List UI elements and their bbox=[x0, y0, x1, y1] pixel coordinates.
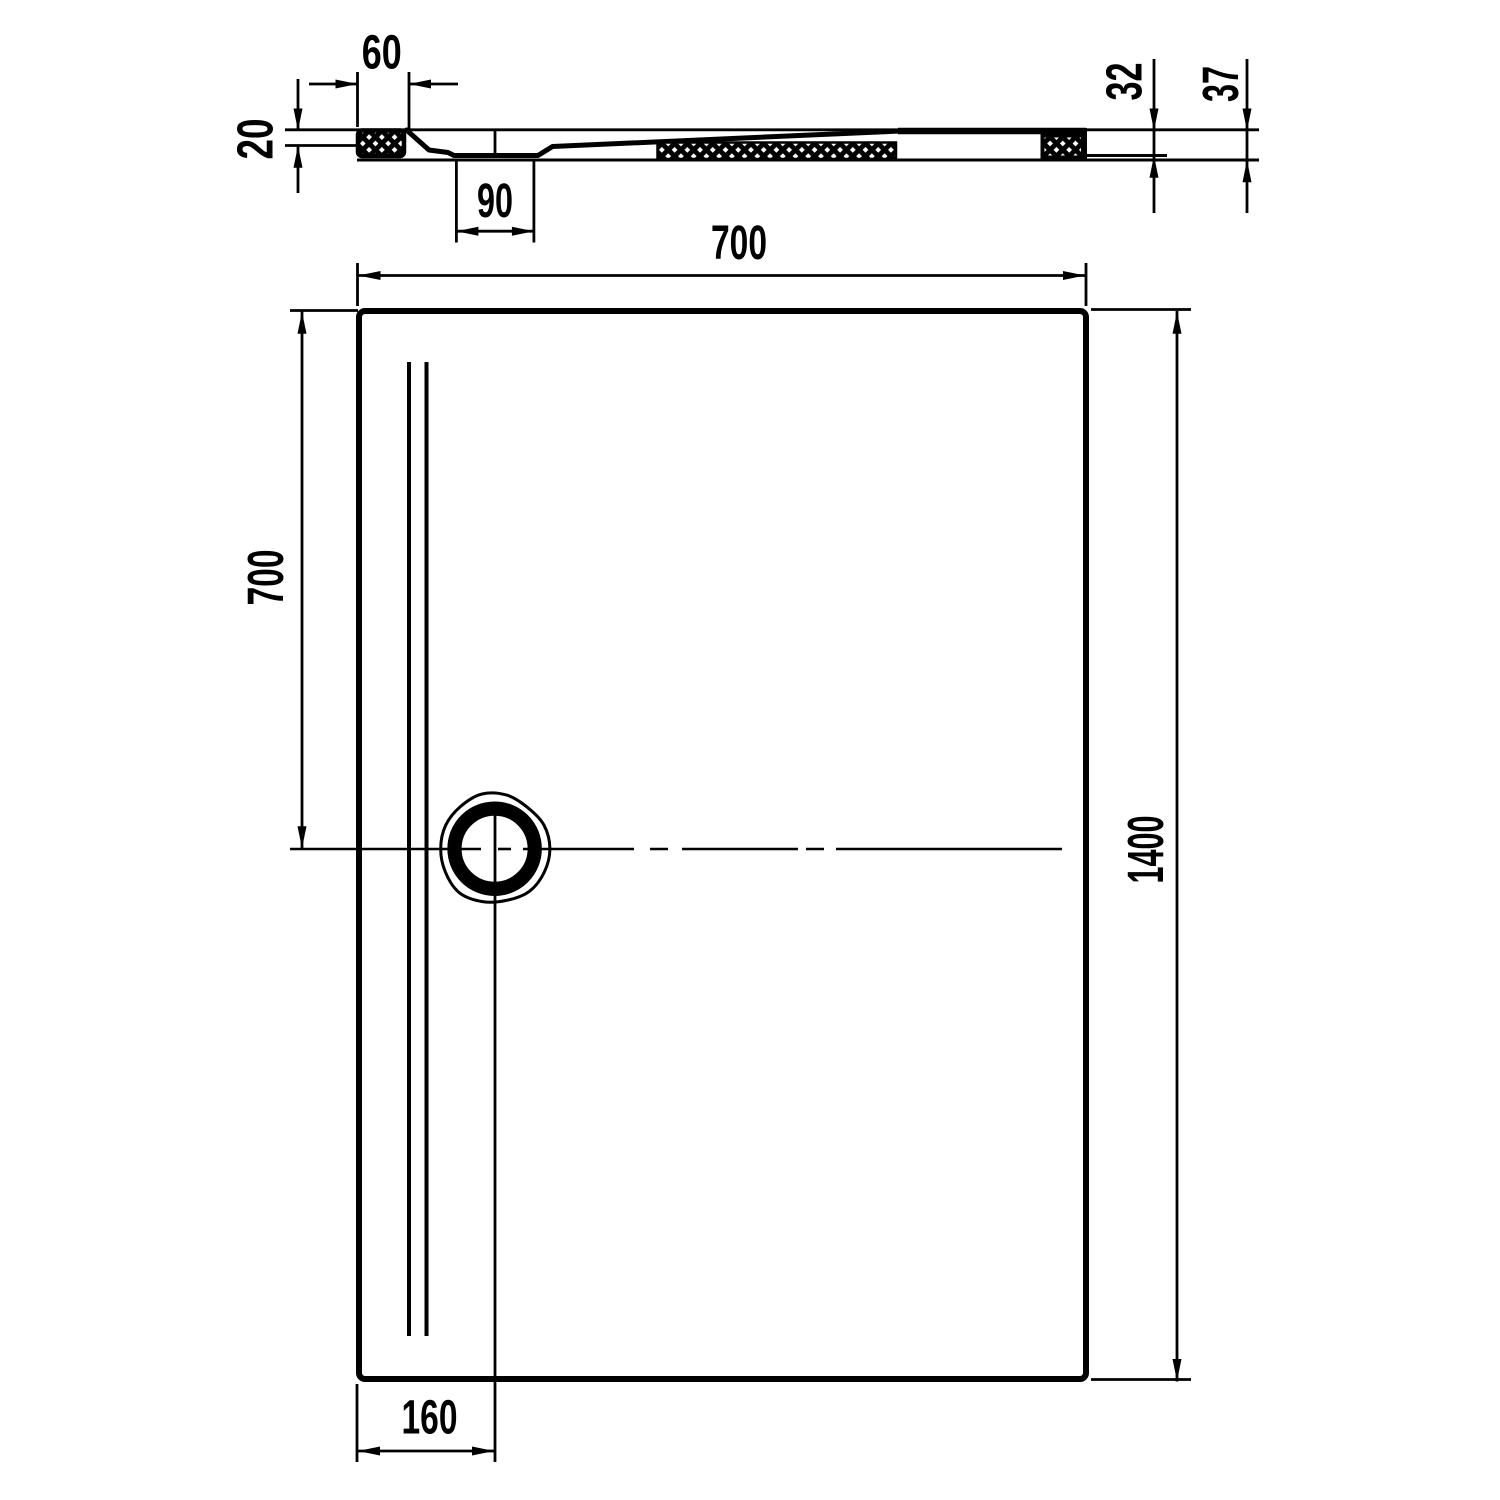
svg-text:32: 32 bbox=[1096, 63, 1153, 101]
svg-text:700: 700 bbox=[237, 550, 294, 606]
svg-text:60: 60 bbox=[362, 26, 402, 79]
svg-text:37: 37 bbox=[1192, 66, 1249, 102]
svg-text:1400: 1400 bbox=[1117, 816, 1174, 884]
svg-text:20: 20 bbox=[227, 119, 284, 160]
svg-text:90: 90 bbox=[477, 175, 513, 228]
svg-text:700: 700 bbox=[711, 217, 767, 270]
svg-text:160: 160 bbox=[402, 1391, 458, 1444]
